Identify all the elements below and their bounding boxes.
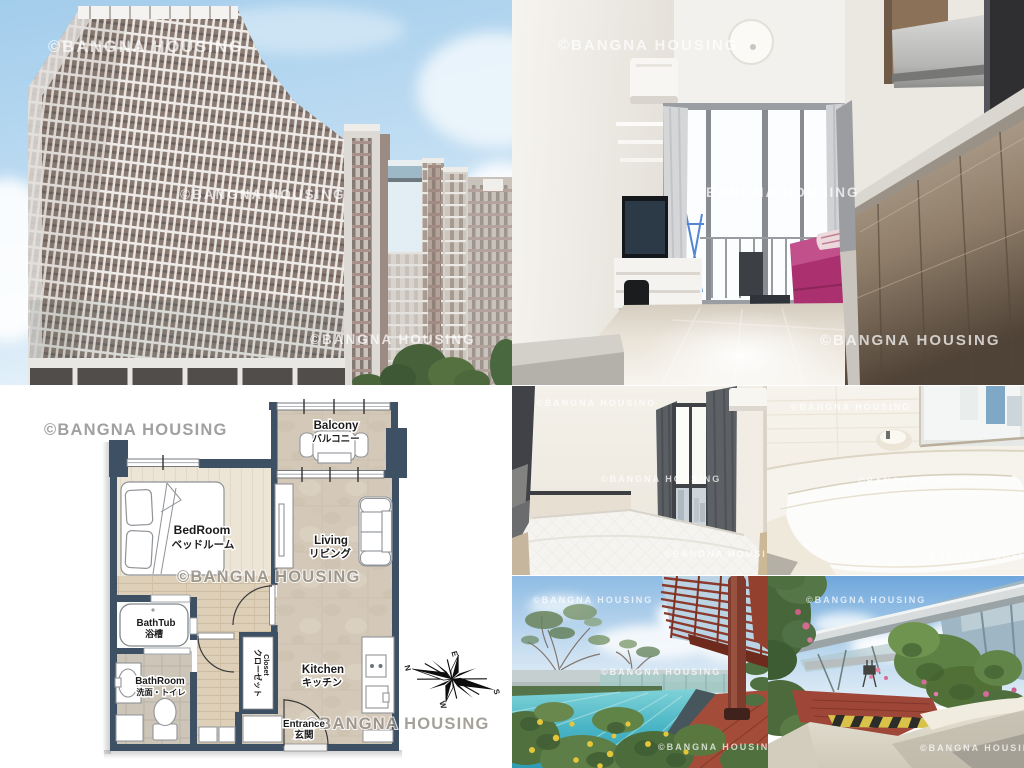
svg-text:BedRoom: BedRoom — [174, 523, 231, 537]
svg-text:©BANGNA HOUSING: ©BANGNA HOUSING — [858, 476, 978, 486]
svg-text:©BANGNA HOUSING: ©BANGNA HOUSING — [306, 715, 490, 733]
svg-text:©BANGNA HOUSING: ©BANGNA HOUSING — [664, 549, 767, 559]
svg-text:©BANGNA HOUSING: ©BANGNA HOUSING — [694, 185, 859, 200]
svg-text:S: S — [491, 688, 501, 696]
svg-text:©BANGNA HOUSING: ©BANGNA HOUSING — [533, 595, 653, 605]
svg-text:BathRoom: BathRoom — [135, 676, 185, 687]
svg-text:Living: Living — [314, 535, 348, 547]
svg-text:©BANGNA HOUSING: ©BANGNA HOUSING — [180, 187, 345, 202]
svg-text:BathTub: BathTub — [137, 618, 176, 629]
svg-text:©BANGNA HOUSING: ©BANGNA HOUSING — [310, 332, 475, 347]
svg-text:©BANGNA HOUSING: ©BANGNA HOUSING — [791, 402, 911, 412]
svg-text:クローゼット: クローゼット — [253, 649, 263, 697]
svg-text:リビング: リビング — [309, 547, 351, 560]
svg-text:©BANGNA HOUSING: ©BANGNA HOUSING — [536, 398, 656, 408]
svg-text:Balcony: Balcony — [314, 420, 359, 432]
svg-text:浴槽: 浴槽 — [145, 628, 163, 639]
svg-text:©BANGNA HOUSING: ©BANGNA HOUSING — [658, 742, 768, 752]
svg-text:©BANGNA HOUSING: ©BANGNA HOUSING — [177, 568, 361, 586]
svg-text:Kitchen: Kitchen — [302, 664, 344, 676]
svg-text:©BANGNA HOUSING: ©BANGNA HOUSING — [806, 595, 926, 605]
svg-text:N: N — [402, 664, 412, 672]
svg-text:©BANGNA HOUSING: ©BANGNA HOUSING — [44, 421, 228, 439]
svg-text:©BANGNA HOUSING: ©BANGNA HOUSING — [558, 37, 739, 54]
svg-text:キッチン: キッチン — [302, 677, 342, 689]
svg-text:©BANGNA HOUSING: ©BANGNA HOUSING — [601, 474, 721, 484]
svg-text:Closet: Closet — [262, 654, 269, 676]
svg-text:©BANGNA HOUSING: ©BANGNA HOUSING — [920, 743, 1024, 753]
svg-text:ベッドルーム: ベッドルーム — [172, 539, 235, 551]
svg-text:Entrance: Entrance — [283, 719, 325, 730]
svg-text:バルコニー: バルコニー — [312, 433, 359, 445]
svg-text:©BANGNA HOUSING: ©BANGNA HOUSING — [921, 551, 1024, 561]
svg-text:©BANGNA HOUSING: ©BANGNA HOUSING — [601, 667, 721, 677]
svg-text:©BANGNA HOUSING: ©BANGNA HOUSING — [820, 332, 1001, 349]
svg-text:洗面・トイレ: 洗面・トイレ — [136, 687, 185, 697]
svg-text:W: W — [437, 700, 448, 710]
svg-text:玄関: 玄関 — [294, 729, 313, 741]
svg-text:©BANGNA HOUSING: ©BANGNA HOUSING — [48, 38, 244, 56]
